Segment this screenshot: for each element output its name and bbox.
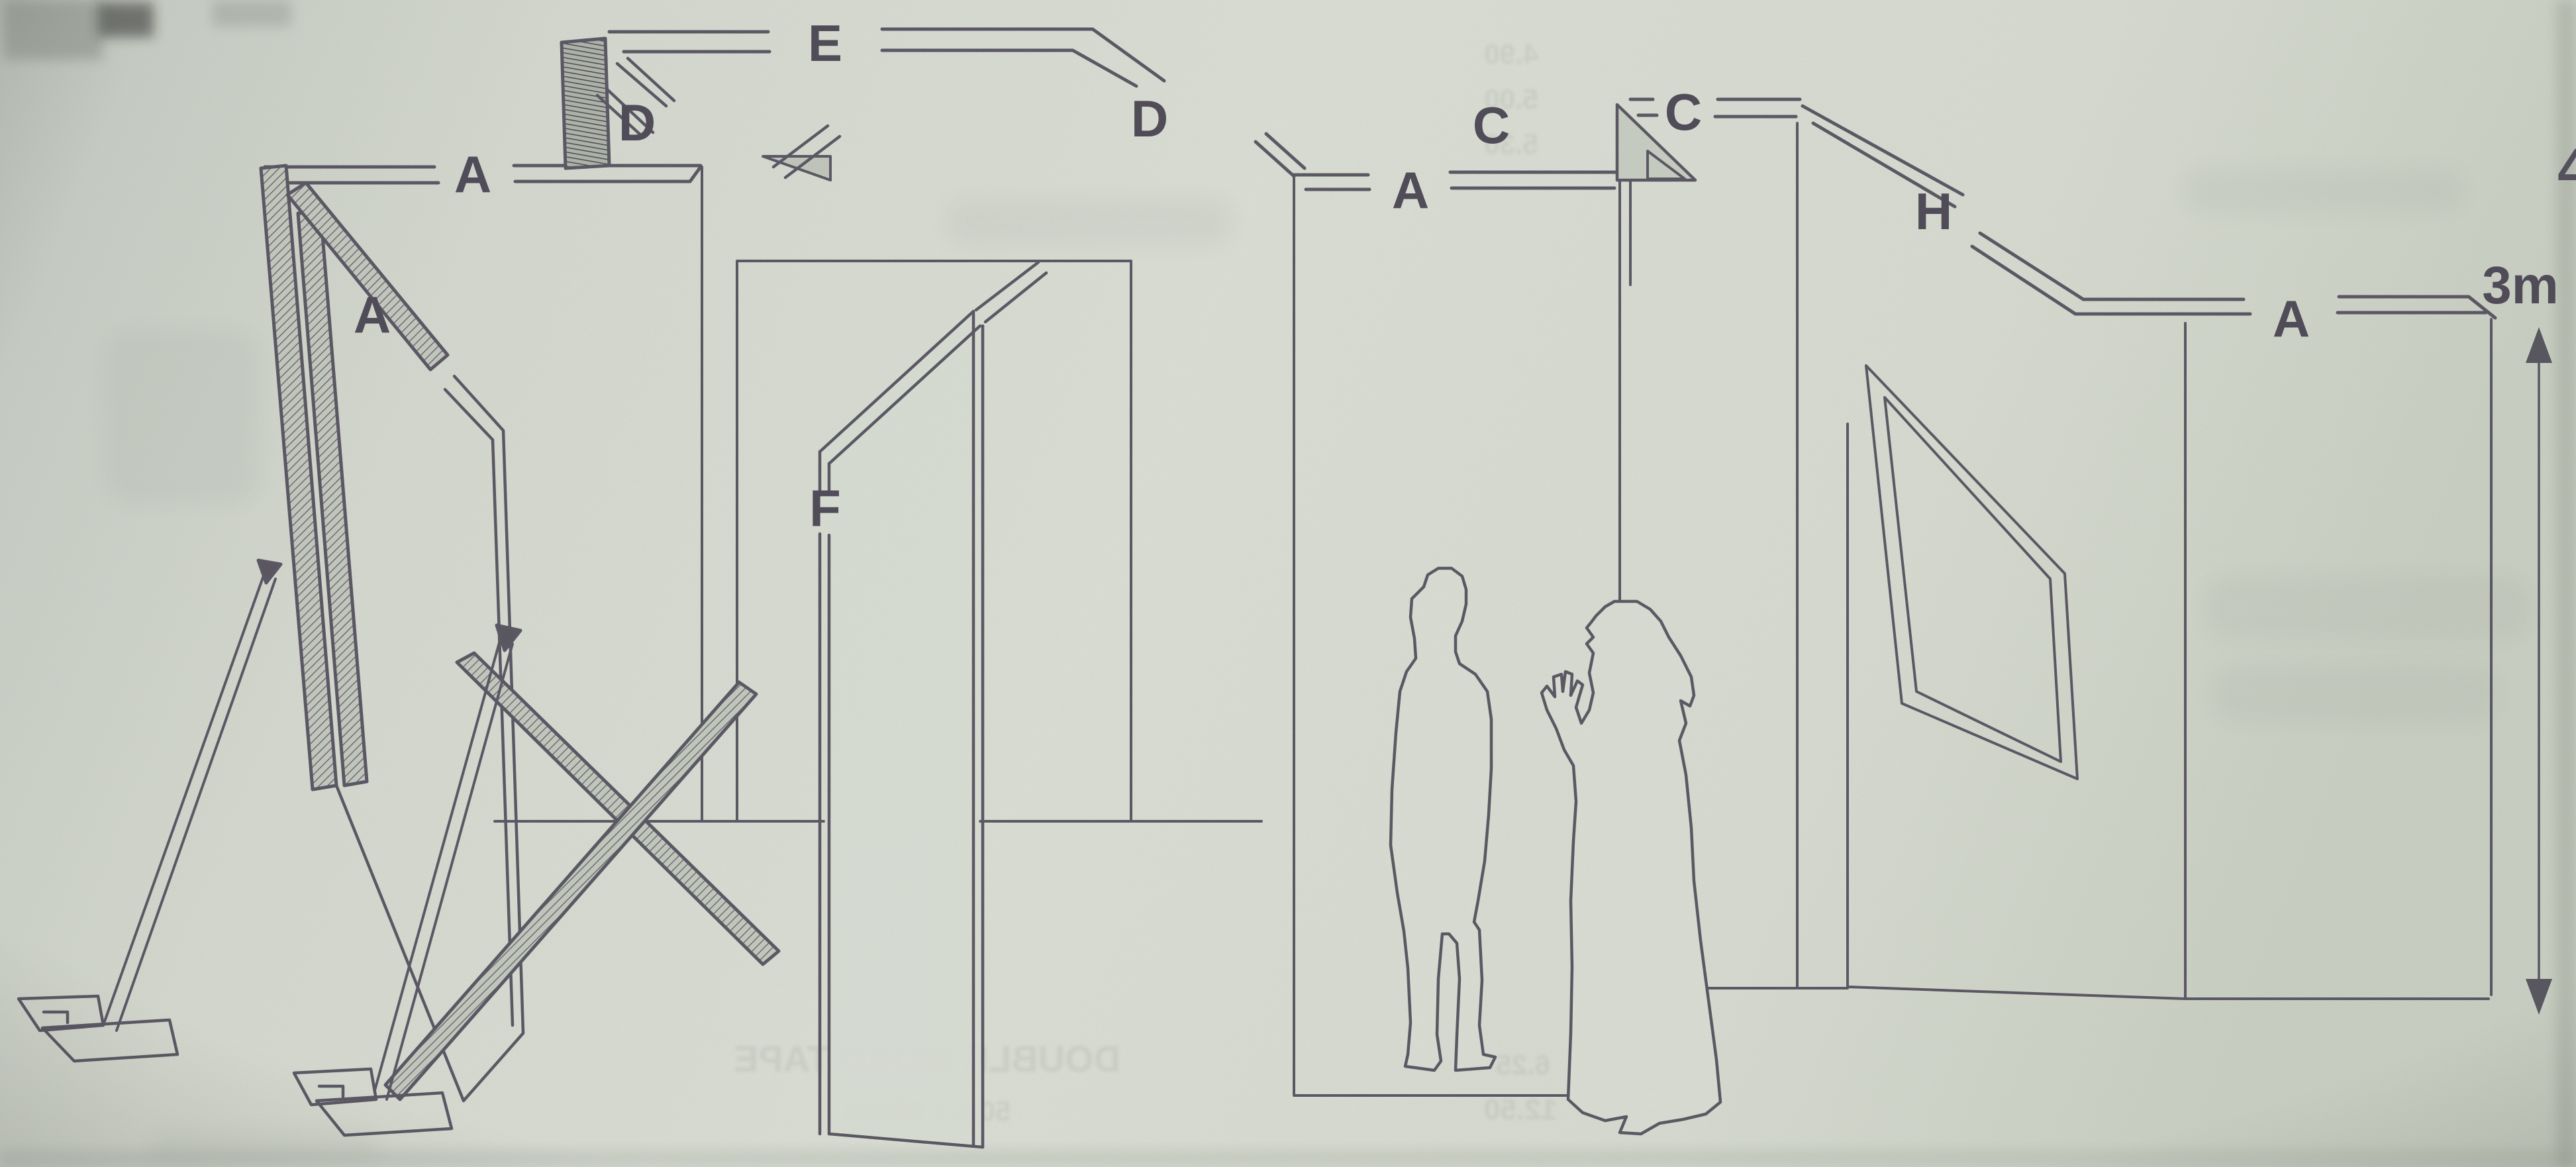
display-wall-diagram: DOUBLE SIDED TAPE 50m x 50mm 12.50 6.25 … (0, 0, 2576, 1167)
scanned-catalogue-page: DOUBLE SIDED TAPE 50m x 50mm 12.50 6.25 … (0, 0, 2576, 1167)
vignette-overlay (0, 0, 2576, 1167)
